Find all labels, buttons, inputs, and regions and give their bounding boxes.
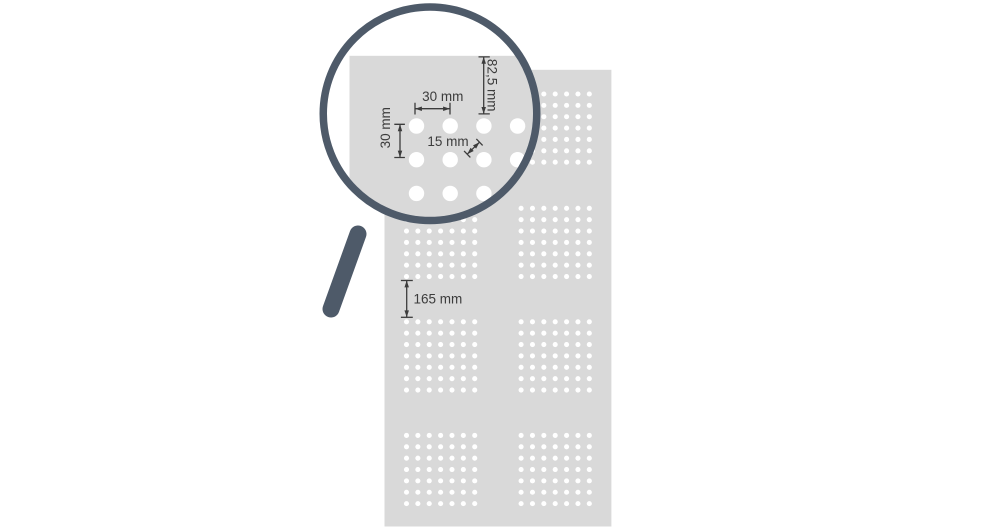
svg-text:165 mm: 165 mm [414,292,463,307]
svg-text:82,5 mm: 82,5 mm [485,59,500,112]
svg-text:30 mm: 30 mm [422,89,463,104]
svg-text:15 mm: 15 mm [427,134,468,149]
svg-text:30 mm: 30 mm [378,107,393,148]
